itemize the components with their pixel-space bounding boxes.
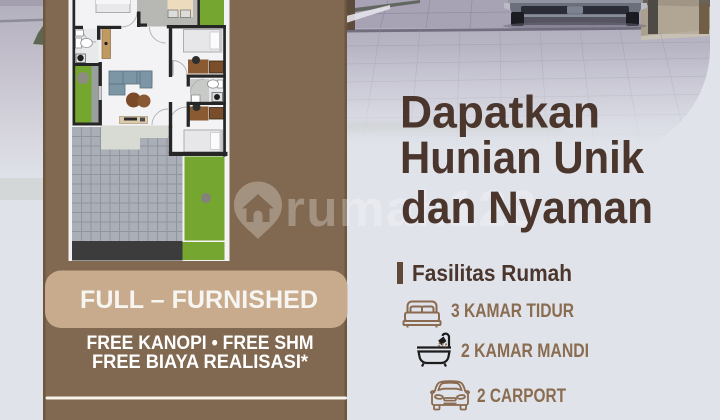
svg-text:Hunian Unik: Hunian Unik bbox=[400, 132, 645, 183]
svg-text:Fasilitas Rumah: Fasilitas Rumah bbox=[412, 260, 572, 286]
svg-text:FULL – FURNISHED: FULL – FURNISHED bbox=[80, 287, 318, 314]
svg-text:3 KAMAR TIDUR: 3 KAMAR TIDUR bbox=[451, 300, 574, 322]
svg-text:FREE BIAYA REALISASI*: FREE BIAYA REALISASI* bbox=[92, 351, 308, 373]
svg-text:2 CARPORT: 2 CARPORT bbox=[477, 385, 566, 407]
svg-text:Dapatkan: Dapatkan bbox=[400, 87, 600, 138]
svg-text:dan Nyaman: dan Nyaman bbox=[401, 182, 653, 233]
svg-text:2 KAMAR MANDI: 2 KAMAR MANDI bbox=[461, 340, 589, 362]
